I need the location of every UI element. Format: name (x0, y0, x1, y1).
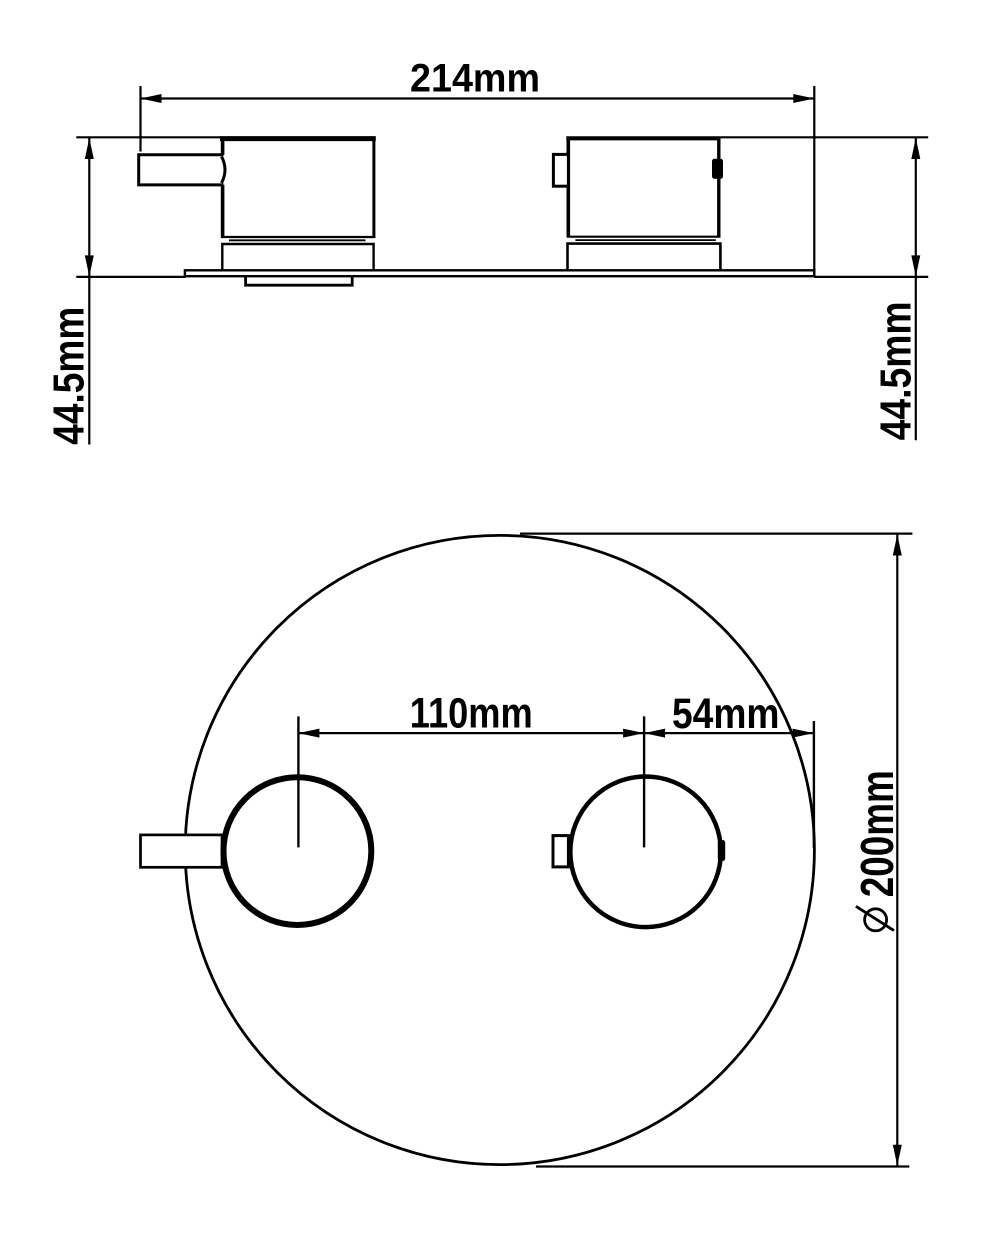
svg-text:44.5mm: 44.5mm (45, 307, 94, 445)
svg-text:54mm: 54mm (672, 691, 780, 738)
svg-text:200mm: 200mm (851, 770, 903, 897)
svg-text:214mm: 214mm (410, 57, 540, 101)
svg-text:44.5mm: 44.5mm (872, 301, 921, 440)
svg-text:110mm: 110mm (410, 691, 533, 738)
